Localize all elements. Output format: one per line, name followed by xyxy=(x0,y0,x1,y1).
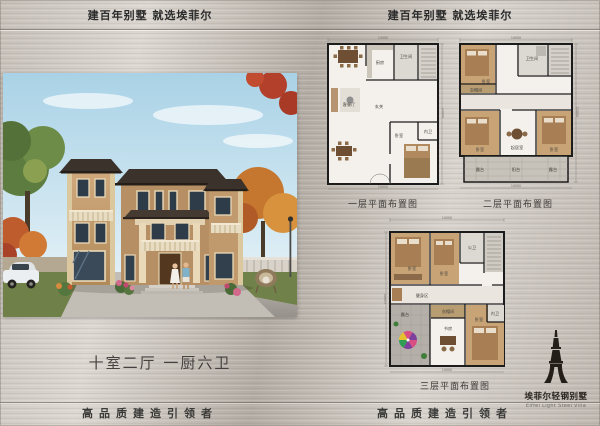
dim-top: 10000 xyxy=(378,36,388,40)
floor-plan-1-label: 一层平面布置图 xyxy=(322,197,444,210)
floor-plan-3-label: 三层平面布置图 xyxy=(390,379,520,392)
room-label: 卧室 xyxy=(550,146,558,153)
footer-slogan-right: 高品质建造引领者 xyxy=(300,405,590,421)
header-divider xyxy=(0,29,600,31)
floor-plan-3-drawing: 10000 15000 10000 xyxy=(384,210,510,378)
brochure-page: 建百年别墅 就选埃菲尔 建百年别墅 就选埃菲尔 xyxy=(0,0,600,426)
room-label: 卧室 xyxy=(475,316,483,323)
living-area xyxy=(331,88,360,112)
bed-bottom-left xyxy=(465,117,489,145)
room-label: 卧室 xyxy=(482,78,490,85)
floor-plan-1: 10000 15000 10000 xyxy=(322,36,444,194)
villa-rendering-image xyxy=(3,73,297,317)
room-label: 阳台 xyxy=(512,166,520,173)
bed-bottom-right xyxy=(542,116,566,144)
bedroom-bed xyxy=(404,144,430,178)
room-label: 内卫 xyxy=(424,128,432,135)
room-label: 健身区 xyxy=(416,292,429,299)
room-label: 卧室 xyxy=(408,265,416,272)
villa-illustration xyxy=(3,73,297,317)
dim-bottom: 10000 xyxy=(511,184,521,188)
bed-bottom-right xyxy=(472,326,498,360)
bed-top-center xyxy=(434,239,454,265)
dim-top: 10000 xyxy=(511,36,521,40)
layout-caption: 十室二厅 一厨六卫 xyxy=(60,352,260,373)
room-label: 卧室 xyxy=(440,270,448,277)
room-label: 厨房 xyxy=(376,59,384,66)
floor-plan-2-drawing: 10000 15000 10000 xyxy=(456,36,580,194)
room-label: 起居室 xyxy=(511,144,524,151)
header-slogan-right: 建百年别墅 就选埃菲尔 xyxy=(300,7,600,23)
room-label: 露台 xyxy=(401,311,409,318)
room-label: 客餐厅 xyxy=(343,101,356,108)
floor-plan-2: 10000 15000 10000 xyxy=(456,36,580,194)
dim-bottom: 10000 xyxy=(378,185,388,189)
footer-slogan-left: 高品质建造引领者 xyxy=(0,405,300,421)
dim-left: 15000 xyxy=(384,294,387,304)
room-label: 卧室 xyxy=(395,132,403,139)
patio-umbrella xyxy=(399,331,417,349)
bed-top-left xyxy=(465,49,489,76)
terrace xyxy=(391,305,430,365)
room-label: 卫生间 xyxy=(526,55,539,62)
floor-plan-2-label: 二层平面布置图 xyxy=(456,197,580,210)
floor-plan-1-drawing: 10000 15000 10000 xyxy=(322,36,444,194)
room-label: 衣帽间 xyxy=(442,308,455,315)
dim-right: 15000 xyxy=(441,108,444,118)
brand-name: 埃菲尔轻钢别墅 xyxy=(506,390,600,402)
room-label: 内卫 xyxy=(491,310,499,317)
room-label: 公卫 xyxy=(468,245,476,250)
dim-top: 10000 xyxy=(442,216,452,220)
room-label: 书房 xyxy=(444,325,452,332)
room-label: 衣帽间 xyxy=(470,87,483,94)
dim-right: 15000 xyxy=(575,107,579,117)
villa-house xyxy=(59,159,249,294)
footer-divider xyxy=(0,402,600,404)
floor-plan-3: 10000 15000 10000 xyxy=(384,210,510,378)
room-label: 卫生间 xyxy=(400,53,413,60)
room-label: 露台 xyxy=(549,166,557,173)
room-label: 玄关 xyxy=(375,103,383,110)
header-slogan-left: 建百年别墅 就选埃菲尔 xyxy=(0,7,300,23)
room-label: 露台 xyxy=(476,166,484,173)
room-label: 卧室 xyxy=(476,146,484,153)
dim-bottom: 10000 xyxy=(442,368,452,372)
brand-block: 埃菲尔轻钢别墅 Eiffel Light Steel Villa xyxy=(506,330,600,409)
eiffel-tower-icon xyxy=(541,330,571,384)
